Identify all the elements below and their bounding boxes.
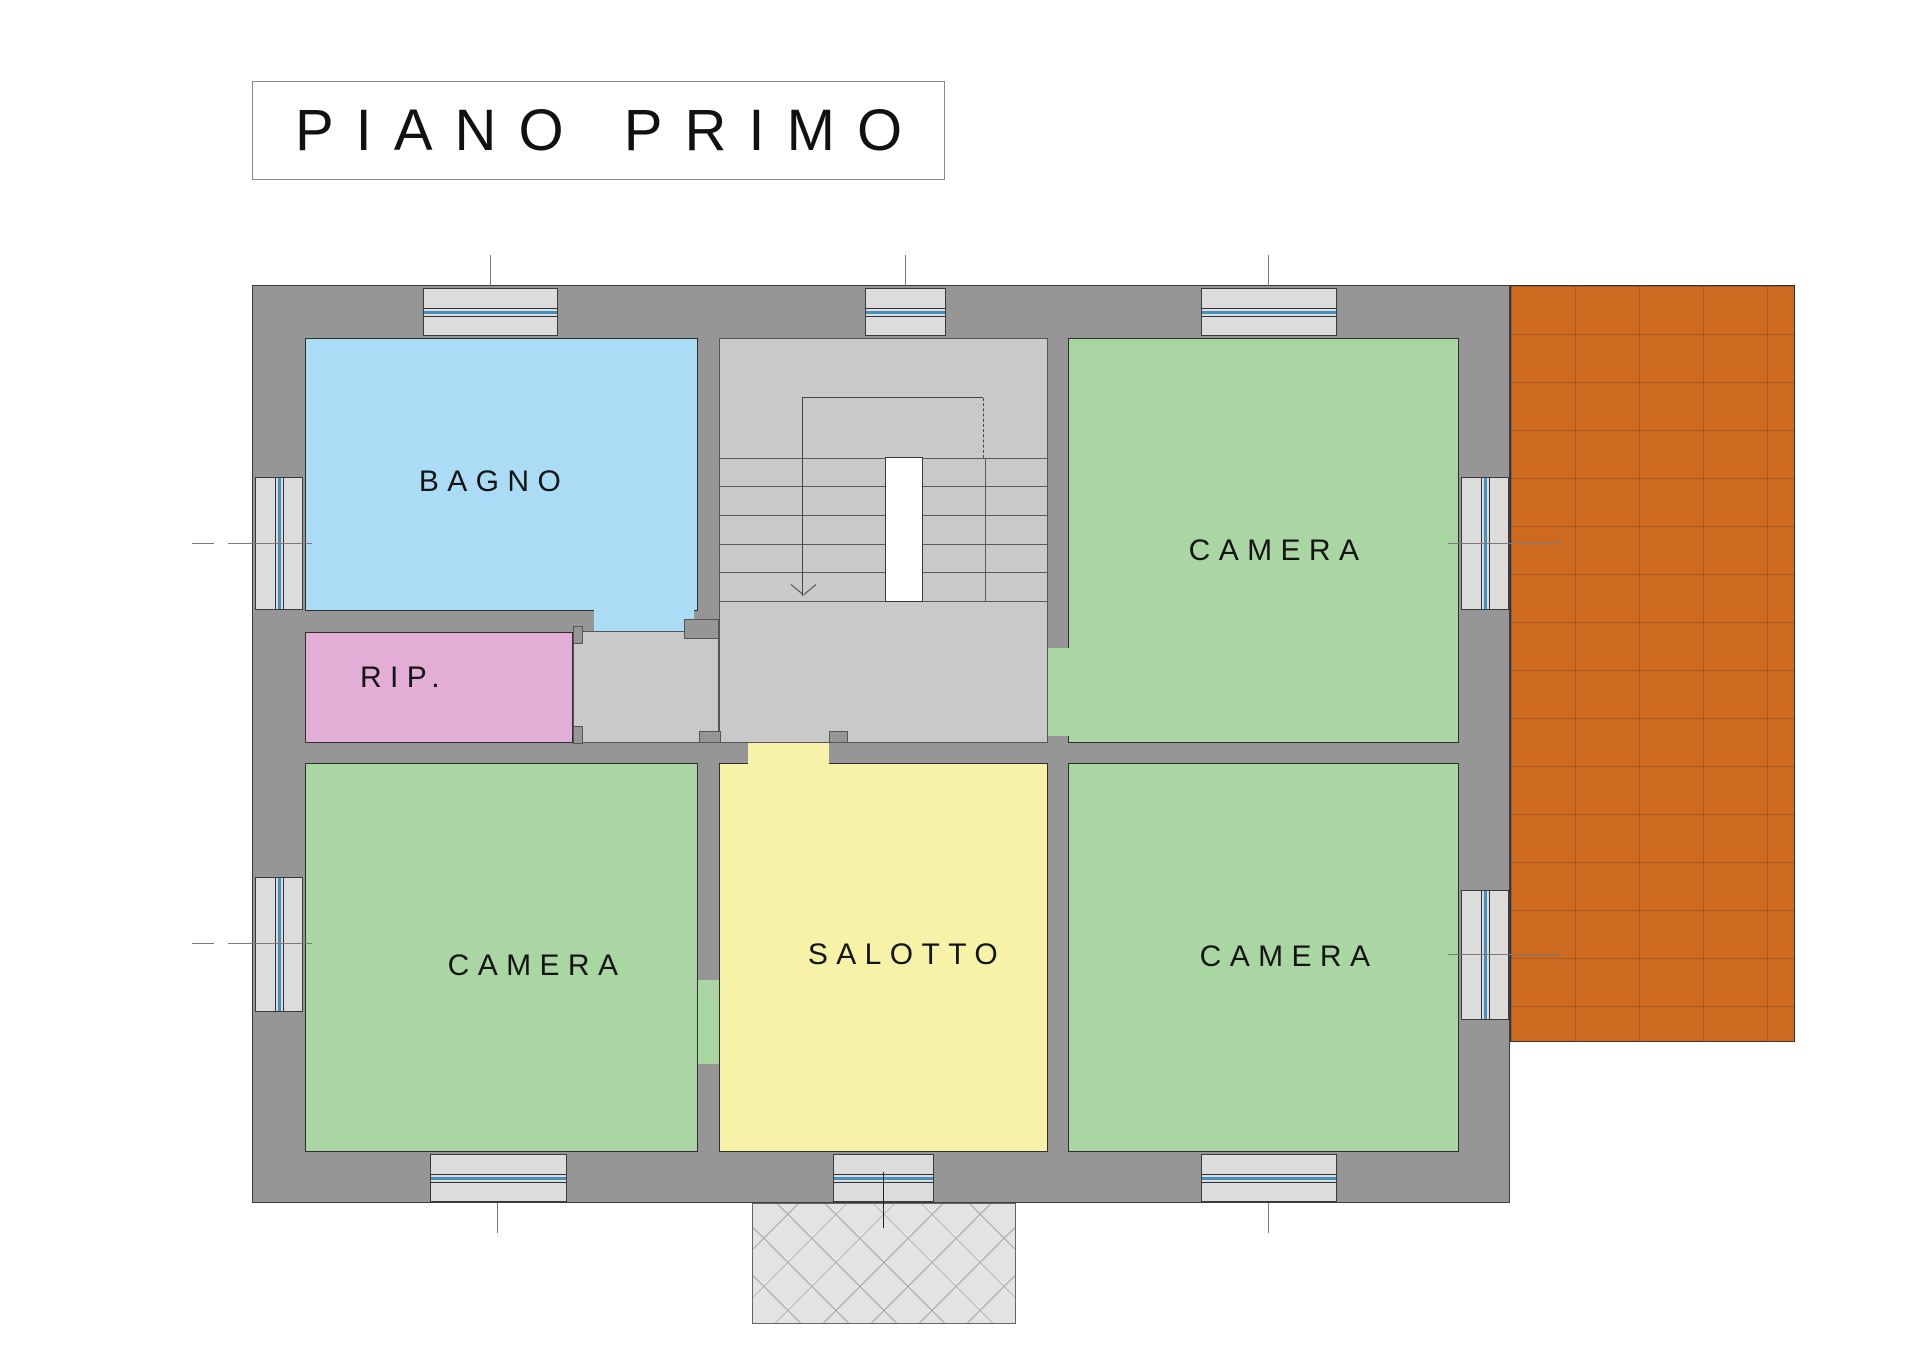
axis-line bbox=[192, 543, 214, 544]
window-glazing bbox=[1202, 308, 1336, 317]
stair-step bbox=[719, 544, 1048, 545]
axis-line bbox=[1448, 954, 1563, 955]
axis-line bbox=[192, 943, 214, 944]
axis-line bbox=[490, 255, 491, 287]
axis-line bbox=[497, 1203, 498, 1233]
window-top-camera-ne bbox=[1201, 288, 1337, 336]
plan-title: PIANO PRIMO bbox=[295, 97, 924, 164]
wall-stub-bagno bbox=[684, 619, 719, 639]
stair-step bbox=[719, 458, 1048, 459]
door-jamb-salotto-left bbox=[699, 731, 721, 743]
axis-line bbox=[1268, 1203, 1269, 1233]
door-opening-salotto bbox=[748, 743, 829, 764]
room-label-rip: RIP. bbox=[360, 661, 448, 695]
window-bottom-camera-se bbox=[1201, 1154, 1337, 1202]
window-bottom-camera-sw bbox=[430, 1154, 567, 1202]
stair-step bbox=[719, 515, 1048, 516]
floor-plan bbox=[252, 285, 1510, 1203]
window-glazing bbox=[1202, 1174, 1336, 1183]
stair-arrow-shaft bbox=[802, 397, 803, 596]
window-left-camera-sw bbox=[255, 877, 303, 1012]
door-jamb-rip-bottom bbox=[573, 726, 583, 744]
door-opening-camera-ne bbox=[1048, 648, 1069, 736]
axis-line bbox=[1448, 543, 1563, 544]
axis-line bbox=[228, 543, 312, 544]
stair-step bbox=[719, 572, 1048, 573]
axis-line bbox=[883, 1172, 884, 1228]
door-jamb-salotto-right bbox=[829, 731, 848, 743]
door-opening-camera-sw bbox=[698, 980, 719, 1064]
hallway-floor bbox=[573, 631, 719, 743]
stair-hall-floor bbox=[719, 338, 1048, 743]
window-glazing bbox=[424, 308, 557, 317]
axis-line bbox=[905, 255, 906, 287]
terrace bbox=[1510, 285, 1795, 1042]
axis-line bbox=[1268, 255, 1269, 287]
room-label-camera-se: CAMERA bbox=[1200, 940, 1379, 974]
window-top-bagno bbox=[423, 288, 558, 336]
room-label-bagno: BAGNO bbox=[419, 465, 569, 499]
window-glazing bbox=[1481, 891, 1490, 1019]
axis-line bbox=[228, 943, 312, 944]
room-label-camera-ne: CAMERA bbox=[1189, 534, 1368, 568]
stair-edge-line bbox=[985, 458, 986, 601]
stair-step bbox=[719, 601, 1048, 602]
door-opening-bagno bbox=[594, 610, 694, 633]
window-glazing bbox=[275, 878, 284, 1011]
porch bbox=[752, 1203, 1016, 1324]
plan-title-box: PIANO PRIMO bbox=[252, 81, 945, 180]
window-top-stairs bbox=[865, 288, 946, 336]
stair-void bbox=[885, 457, 923, 602]
stair-rail-dashed bbox=[983, 398, 984, 458]
door-jamb-rip-top bbox=[573, 626, 583, 644]
stair-rail-line bbox=[802, 397, 983, 398]
window-right-camera-se bbox=[1461, 890, 1509, 1020]
window-glazing bbox=[866, 308, 945, 317]
room-label-salotto: SALOTTO bbox=[808, 938, 1006, 972]
stair-step bbox=[719, 486, 1048, 487]
room-label-camera-sw: CAMERA bbox=[448, 949, 627, 983]
window-glazing bbox=[431, 1174, 566, 1183]
